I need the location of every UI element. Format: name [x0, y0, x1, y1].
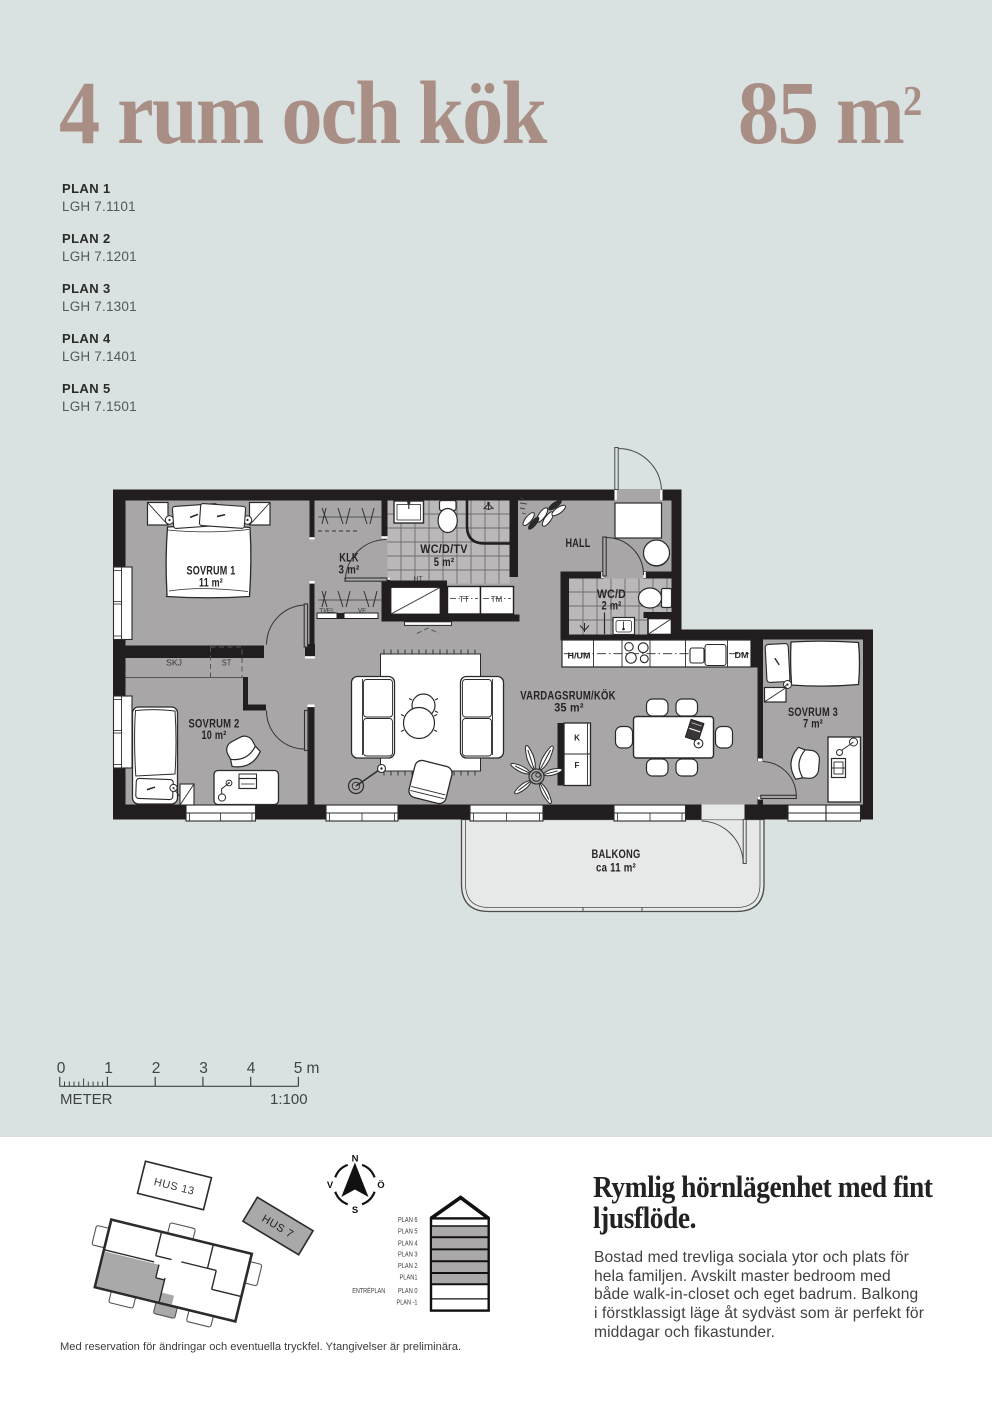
svg-text:5: 5 — [294, 1060, 303, 1077]
svg-text:PLAN 5: PLAN 5 — [398, 1227, 418, 1236]
svg-text:TT: TT — [459, 595, 469, 604]
svg-text:SKJ: SKJ — [166, 658, 182, 667]
svg-text:10 m²: 10 m² — [202, 728, 227, 742]
svg-text:PLAN 2: PLAN 2 — [398, 1261, 418, 1270]
svg-text:METER: METER — [60, 1091, 113, 1108]
svg-text:N: N — [352, 1154, 359, 1165]
svg-text:7 m²: 7 m² — [803, 716, 823, 730]
svg-text:PLAN 4: PLAN 4 — [398, 1238, 418, 1247]
svg-text:PLAN1: PLAN1 — [400, 1273, 418, 1282]
svg-text:PLAN -1: PLAN -1 — [397, 1298, 418, 1307]
svg-text:K: K — [574, 734, 580, 743]
svg-text:H/UM: H/UM — [568, 652, 591, 661]
svg-text:BALKONG: BALKONG — [592, 847, 641, 861]
svg-text:5 m²: 5 m² — [434, 555, 455, 569]
svg-text:35 m²: 35 m² — [554, 700, 584, 714]
svg-text:3: 3 — [199, 1060, 208, 1077]
svg-text:F: F — [575, 761, 580, 770]
svg-text:2 m²: 2 m² — [602, 598, 622, 612]
svg-text:1:100: 1:100 — [270, 1091, 308, 1108]
svg-text:ST: ST — [222, 658, 232, 667]
svg-text:ENTRÉPLAN: ENTRÉPLAN — [352, 1286, 385, 1295]
svg-text:PLAN 3: PLAN 3 — [398, 1250, 418, 1259]
svg-text:3 m²: 3 m² — [339, 563, 360, 577]
svg-text:11 m²: 11 m² — [199, 575, 223, 589]
svg-text:m: m — [307, 1060, 320, 1077]
svg-text:WC/D/TV: WC/D/TV — [420, 542, 468, 556]
svg-text:4: 4 — [247, 1060, 256, 1077]
svg-text:2: 2 — [152, 1060, 161, 1077]
svg-text:Ö: Ö — [377, 1180, 384, 1191]
svg-text:0: 0 — [57, 1060, 66, 1077]
svg-text:TM: TM — [491, 595, 503, 604]
svg-text:S: S — [352, 1205, 358, 1216]
svg-text:V: V — [327, 1180, 334, 1191]
svg-text:HALL: HALL — [566, 536, 591, 550]
svg-text:1: 1 — [104, 1060, 113, 1077]
svg-text:PLAN 0: PLAN 0 — [398, 1286, 418, 1295]
svg-text:DM: DM — [735, 651, 749, 660]
svg-text:ca 11 m²: ca 11 m² — [596, 861, 636, 875]
svg-text:PLAN 6: PLAN 6 — [398, 1215, 418, 1224]
